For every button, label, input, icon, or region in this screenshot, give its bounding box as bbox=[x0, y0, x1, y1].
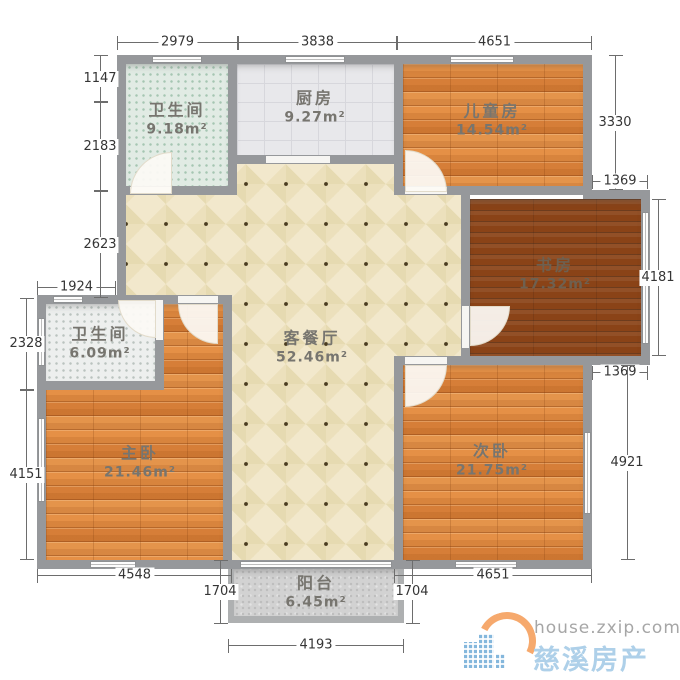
room-name: 厨房 bbox=[284, 85, 345, 109]
dim-left-4: 2328 bbox=[26, 298, 27, 390]
room-name: 阳台 bbox=[285, 570, 346, 594]
dim-bottom-5: 4651 bbox=[394, 575, 592, 576]
dim-value: 1924 bbox=[57, 280, 96, 295]
dim-right-4: 1369 bbox=[592, 372, 648, 373]
room-label-master-bedroom: 主卧 21.46m² bbox=[104, 440, 176, 481]
wall-outer-right-upper bbox=[583, 55, 592, 199]
dim-value: 1369 bbox=[600, 174, 639, 189]
dim-value: 2328 bbox=[7, 336, 44, 352]
room-label-kitchen: 厨房 9.27m² bbox=[284, 85, 345, 126]
room-label-second-bedroom: 次卧 21.75m² bbox=[456, 438, 528, 479]
dim-left-5: 4151 bbox=[26, 390, 27, 560]
floor-plan: 卫生间 9.18m² 厨房 9.27m² 儿童房 14.54m² 书房 17.3… bbox=[0, 0, 680, 680]
window-kitchen bbox=[285, 56, 345, 63]
room-name: 主卧 bbox=[104, 440, 176, 464]
room-area: 6.45m² bbox=[285, 595, 346, 611]
building-icon bbox=[496, 654, 505, 668]
dim-value: 4651 bbox=[475, 35, 514, 50]
dim-right-2: 1369 bbox=[592, 181, 648, 182]
wall-outer-left-upper bbox=[117, 55, 126, 304]
dim-right-3: 4181 bbox=[658, 199, 659, 356]
kitchen-passage bbox=[266, 156, 330, 163]
window-bathroom-top bbox=[152, 56, 202, 63]
window-second-bedroom bbox=[584, 432, 591, 514]
dim-bottom-1: 4548 bbox=[37, 575, 232, 576]
room-label-bathroom-left: 卫生间 6.09m² bbox=[69, 321, 130, 362]
dim-top-1: 2979 bbox=[117, 42, 238, 43]
dim-bottom-4: 1704 bbox=[412, 560, 413, 624]
room-area: 21.46m² bbox=[104, 465, 176, 481]
door-opening-bathroom-left bbox=[156, 300, 163, 340]
window-kids-room bbox=[450, 56, 514, 63]
dim-value: 1704 bbox=[393, 584, 430, 600]
wall-bedroom2-left bbox=[394, 356, 403, 569]
dim-value: 2183 bbox=[81, 139, 118, 155]
dim-left-1: 1147 bbox=[100, 55, 101, 102]
room-name: 卫生间 bbox=[69, 321, 130, 345]
room-label-kids-room: 儿童房 14.54m² bbox=[456, 98, 528, 139]
dim-left-2: 2183 bbox=[100, 102, 101, 191]
dim-value: 4548 bbox=[115, 568, 154, 583]
building-icon bbox=[479, 634, 494, 668]
wall-bathroom-left-bottom bbox=[37, 381, 164, 390]
room-area: 9.18m² bbox=[146, 122, 207, 138]
dim-top-2: 3838 bbox=[238, 42, 397, 43]
room-label-living-dining: 客餐厅 52.46m² bbox=[276, 325, 348, 366]
dim-left-3: 2623 bbox=[100, 191, 101, 298]
dim-top-3: 4651 bbox=[397, 42, 592, 43]
wall-study-top bbox=[583, 190, 650, 199]
dim-value: 4921 bbox=[608, 455, 645, 471]
dim-bathroom-left-width: 1924 bbox=[37, 287, 116, 288]
dim-value: 3330 bbox=[596, 115, 633, 131]
dim-value: 4181 bbox=[639, 270, 676, 286]
room-area: 14.54m² bbox=[456, 123, 528, 139]
watermark: house.zxip.com 慈溪房产网 bbox=[462, 610, 674, 676]
building-icon bbox=[464, 642, 477, 668]
window-master-bedroom bbox=[38, 418, 45, 502]
room-area: 17.32m² bbox=[519, 277, 591, 293]
dim-right-1: 3330 bbox=[615, 55, 616, 190]
door-opening-study bbox=[462, 306, 469, 348]
dim-value: 4151 bbox=[7, 467, 44, 483]
dim-value: 2979 bbox=[158, 35, 197, 50]
window-bathroom-left-top bbox=[53, 296, 83, 303]
balcony-sliding-door bbox=[240, 561, 392, 568]
room-label-study: 书房 17.32m² bbox=[519, 252, 591, 293]
wall-bathroom-top-right bbox=[228, 55, 237, 195]
watermark-site-url: house.zxip.com bbox=[534, 618, 680, 638]
wall-master-right bbox=[223, 295, 232, 569]
dim-value: 4651 bbox=[473, 568, 512, 583]
room-name: 次卧 bbox=[456, 438, 528, 462]
door-opening-master bbox=[178, 296, 218, 303]
room-name: 客餐厅 bbox=[276, 325, 348, 349]
room-area: 9.27m² bbox=[284, 110, 345, 126]
dim-value: 1147 bbox=[81, 71, 118, 87]
room-label-bathroom-top: 卫生间 9.18m² bbox=[146, 97, 207, 138]
room-name: 儿童房 bbox=[456, 98, 528, 122]
room-area: 21.75m² bbox=[456, 463, 528, 479]
wall-balcony-rail bbox=[228, 616, 404, 623]
room-name: 书房 bbox=[519, 252, 591, 276]
room-name: 卫生间 bbox=[146, 97, 207, 121]
dim-bottom-2: 1704 bbox=[220, 560, 221, 624]
dim-value: 2623 bbox=[81, 237, 118, 253]
dim-right-5: 4921 bbox=[627, 365, 628, 560]
room-area: 6.09m² bbox=[69, 346, 130, 362]
door-opening-second-bedroom bbox=[405, 357, 447, 364]
watermark-site-name: 慈溪房产网 bbox=[533, 638, 674, 680]
dim-value: 1704 bbox=[201, 584, 238, 600]
wall-kids-left bbox=[394, 55, 403, 195]
room-area: 52.46m² bbox=[276, 350, 348, 366]
dim-value: 4193 bbox=[296, 638, 335, 653]
dim-value: 1369 bbox=[600, 365, 639, 380]
dim-value: 3838 bbox=[298, 35, 337, 50]
room-label-balcony: 阳台 6.45m² bbox=[285, 570, 346, 611]
dim-bottom-3: 4193 bbox=[228, 645, 404, 646]
